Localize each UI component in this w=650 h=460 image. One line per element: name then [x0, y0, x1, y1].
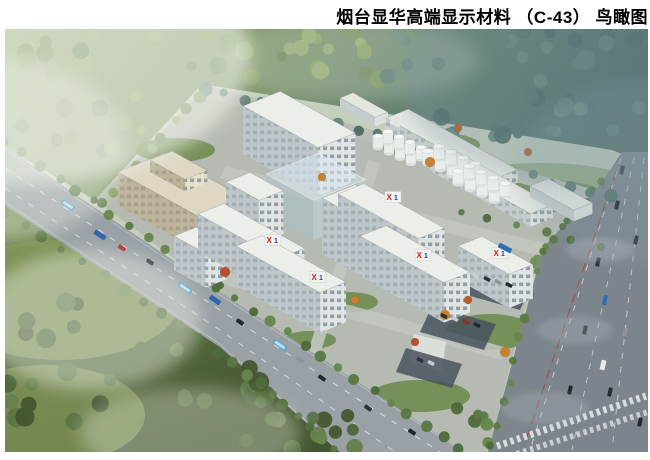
storage-tank — [464, 164, 475, 182]
svg-text:1: 1 — [394, 195, 398, 202]
svg-text:1: 1 — [501, 251, 505, 258]
aerial-rendering: X1X1X1X1X1 — [0, 0, 650, 460]
storage-tank — [405, 140, 415, 156]
company-logo: X1 — [265, 235, 281, 246]
svg-text:X: X — [494, 249, 500, 258]
storage-tank — [383, 129, 393, 145]
company-logo: X1 — [310, 272, 326, 283]
storage-tank — [476, 170, 487, 188]
scene-root: X1X1X1X1X1 — [0, 0, 650, 460]
storage-tank — [394, 135, 404, 151]
svg-text:1: 1 — [274, 238, 278, 245]
page-title: 烟台显华高端显示材料 （C-43） 鸟瞰图 — [336, 3, 648, 28]
svg-text:X: X — [417, 251, 423, 260]
svg-text:X: X — [387, 193, 393, 202]
company-logo: X1 — [415, 250, 431, 261]
storage-tank — [488, 175, 499, 193]
aerial-rendering-figure: X1X1X1X1X1 — [0, 0, 650, 460]
svg-text:1: 1 — [319, 275, 323, 282]
storage-tank — [453, 169, 464, 187]
storage-tank — [500, 181, 511, 199]
svg-text:1: 1 — [424, 253, 428, 260]
company-logo: X1 — [385, 192, 401, 203]
storage-tank — [373, 134, 383, 150]
svg-text:X: X — [267, 236, 273, 245]
svg-text:X: X — [312, 273, 318, 282]
